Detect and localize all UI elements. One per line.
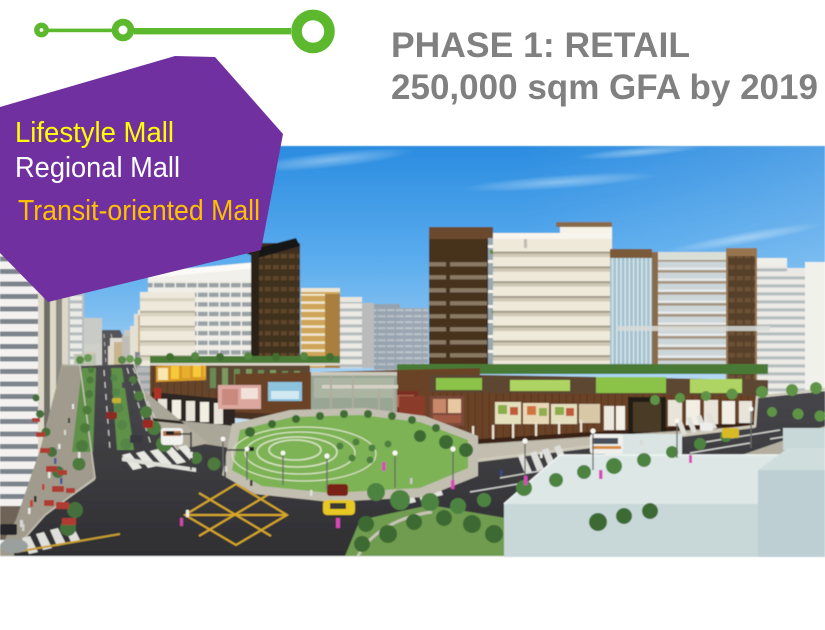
svg-text:Lifestyle Mall: Lifestyle Mall — [15, 117, 174, 149]
svg-text:PHASE 1: RETAIL: PHASE 1: RETAIL — [391, 25, 690, 65]
svg-text:Regional Mall: Regional Mall — [15, 152, 180, 184]
svg-text:Transit-oriented Mall: Transit-oriented Mall — [18, 195, 260, 227]
svg-text:250,000 sqm GFA by 2019: 250,000 sqm GFA by 2019 — [391, 67, 818, 107]
